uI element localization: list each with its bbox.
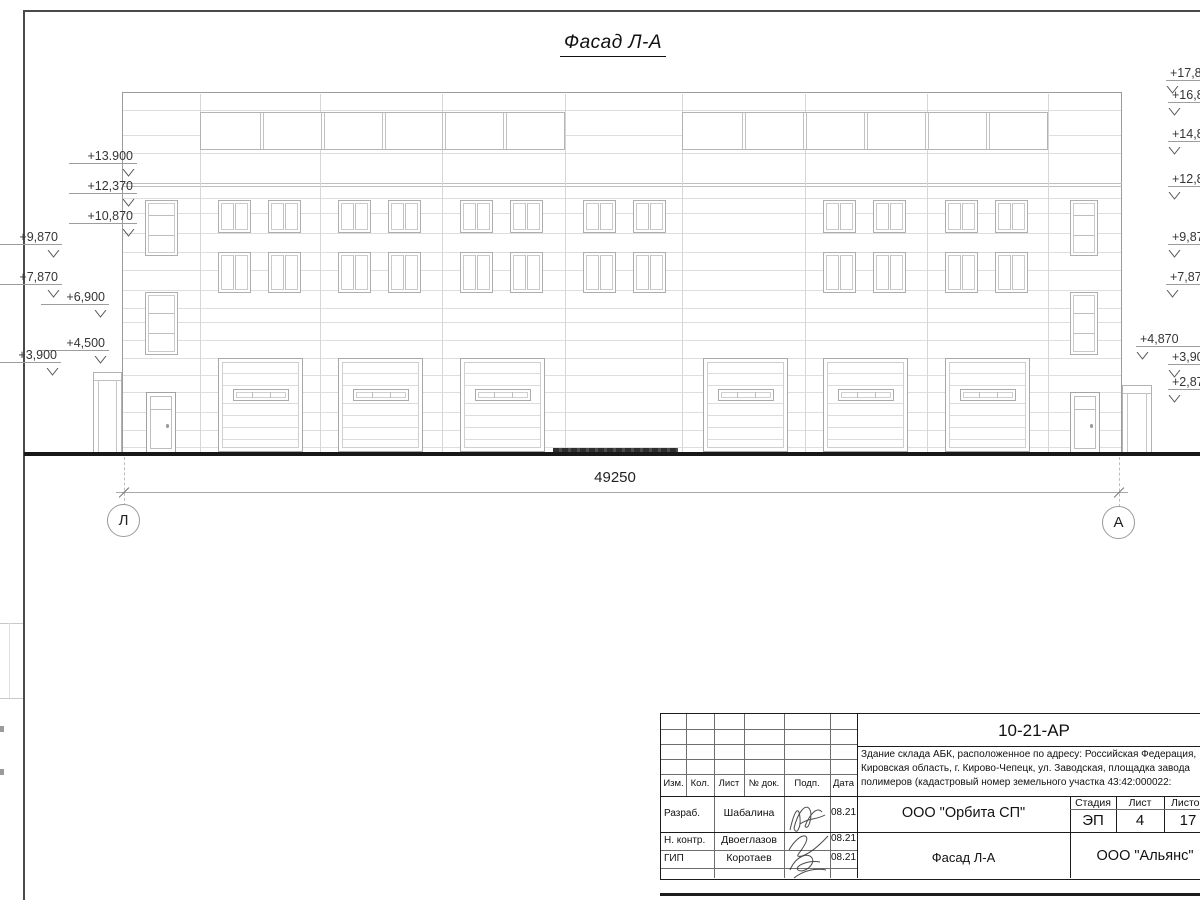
elevation-symbol-icon xyxy=(122,229,135,237)
elevation-symbol xyxy=(122,224,135,232)
tb-grid-line xyxy=(1070,809,1200,810)
elevation-mark: +3,900 xyxy=(0,348,57,362)
drawing-sheet: Фасад Л-А 49250 Л А +1 xyxy=(0,0,1200,900)
tb-role-2: Н. контр. xyxy=(664,835,705,846)
elevation-mark: +2,870 xyxy=(1172,375,1200,389)
elevation-symbol-icon xyxy=(122,169,135,177)
tb-date-1: 08.21 xyxy=(830,807,857,818)
tb-description-line3: полимеров (кадастровый номер земельного … xyxy=(861,777,1171,788)
elevation-symbol xyxy=(1168,142,1181,150)
elevation-mark: +9,870 xyxy=(0,230,58,244)
tb-col-doc: № док. xyxy=(744,778,784,789)
elevation-symbol xyxy=(47,245,60,253)
tb-grid-line xyxy=(661,744,857,745)
elevation-symbol-icon xyxy=(1168,108,1181,116)
tb-col-podp: Подп. xyxy=(784,778,830,789)
tb-grid-line xyxy=(661,759,857,760)
tb-description-line2: Кировская область, г. Кирово-Чепецк, ул.… xyxy=(861,763,1190,774)
tb-stage-value: ЭП xyxy=(1070,812,1116,829)
elevation-mark: +7,870 xyxy=(0,270,58,284)
elevation-mark: +12,370 xyxy=(63,179,133,193)
elevation-symbol xyxy=(1166,285,1179,293)
elevation-mark: +12,870 xyxy=(1172,172,1200,186)
tb-name-1: Шабалина xyxy=(714,807,784,819)
tb-col-list: Лист xyxy=(714,778,744,789)
tb-role-3: ГИП xyxy=(664,853,684,864)
tb-contractor: ООО "Альянс" xyxy=(1070,848,1200,864)
elevation-mark: +13.900 xyxy=(63,149,133,163)
tb-col-izm: Изм. xyxy=(661,778,686,789)
elevation-symbol xyxy=(1168,103,1181,111)
elevation-symbol-icon xyxy=(46,368,59,376)
elevation-symbol xyxy=(122,194,135,202)
tb-description-line1: Здание склада АБК, расположенное по адре… xyxy=(861,749,1196,760)
tb-col-kol: Кол. xyxy=(686,778,714,789)
elevation-symbol xyxy=(1168,187,1181,195)
elevation-symbol xyxy=(1168,245,1181,253)
elevation-mark: +17,870 xyxy=(1170,66,1200,80)
elevation-mark: +3,900 xyxy=(1172,350,1200,364)
tb-date-3: 08.21 xyxy=(830,852,857,863)
tb-grid-line xyxy=(661,729,857,730)
tb-sheet-value: 4 xyxy=(1116,812,1164,829)
elevation-symbol-icon xyxy=(1168,147,1181,155)
elevation-mark: +14,870 xyxy=(1172,127,1200,141)
elevation-mark: +7,870 xyxy=(1170,270,1200,284)
tb-sheets-value: 17 xyxy=(1164,812,1200,829)
elevation-symbol-icon xyxy=(47,250,60,258)
elevation-symbol-icon xyxy=(1166,290,1179,298)
elevation-symbol xyxy=(46,363,59,371)
elevation-mark: +10,870 xyxy=(63,209,133,223)
elevation-mark: +6,900 xyxy=(35,290,105,304)
elevation-symbol-icon xyxy=(94,310,107,318)
elevation-mark: +4,870 xyxy=(1140,332,1179,346)
tb-grid-line xyxy=(857,746,1200,747)
title-block: Изм. Кол. Лист № док. Подп. Дата Разраб.… xyxy=(660,713,1200,880)
elevation-symbol-icon xyxy=(1168,250,1181,258)
elevation-mark: +16,870 xyxy=(1172,88,1200,102)
tb-role-1: Разраб. xyxy=(664,808,700,819)
tb-doc-number: 10-21-АР xyxy=(857,721,1200,741)
elevation-symbol xyxy=(94,351,107,359)
elevation-symbol xyxy=(1136,347,1149,355)
elevation-symbol-icon xyxy=(1136,352,1149,360)
tb-date-2: 08.21 xyxy=(830,833,857,844)
tb-grid-line xyxy=(661,832,1200,833)
elevation-mark: +9,870 xyxy=(1172,230,1200,244)
elevation-symbol xyxy=(1168,365,1181,373)
signature-2 xyxy=(784,830,831,880)
tb-sheets-label: Листов xyxy=(1164,797,1200,809)
tb-name-2: Двоеглазов xyxy=(714,834,784,846)
elevation-symbol xyxy=(94,305,107,313)
tb-drawing-name: Фасад Л-А xyxy=(857,850,1070,865)
elevation-symbol-icon xyxy=(1168,395,1181,403)
elevation-symbol xyxy=(1168,390,1181,398)
tb-name-3: Коротаев xyxy=(714,852,784,864)
elevation-symbol-icon xyxy=(122,199,135,207)
elevation-symbol-icon xyxy=(1168,192,1181,200)
tb-stage-label: Стадия xyxy=(1070,797,1116,809)
tb-org: ООО "Орбита СП" xyxy=(857,805,1070,821)
tb-col-data: Дата xyxy=(830,778,857,789)
tb-grid-line xyxy=(661,774,857,775)
sheet-frame-bottom xyxy=(660,893,1200,896)
elevation-symbol xyxy=(122,164,135,172)
elevation-symbol-icon xyxy=(94,356,107,364)
tb-sheet-label: Лист xyxy=(1116,797,1164,809)
